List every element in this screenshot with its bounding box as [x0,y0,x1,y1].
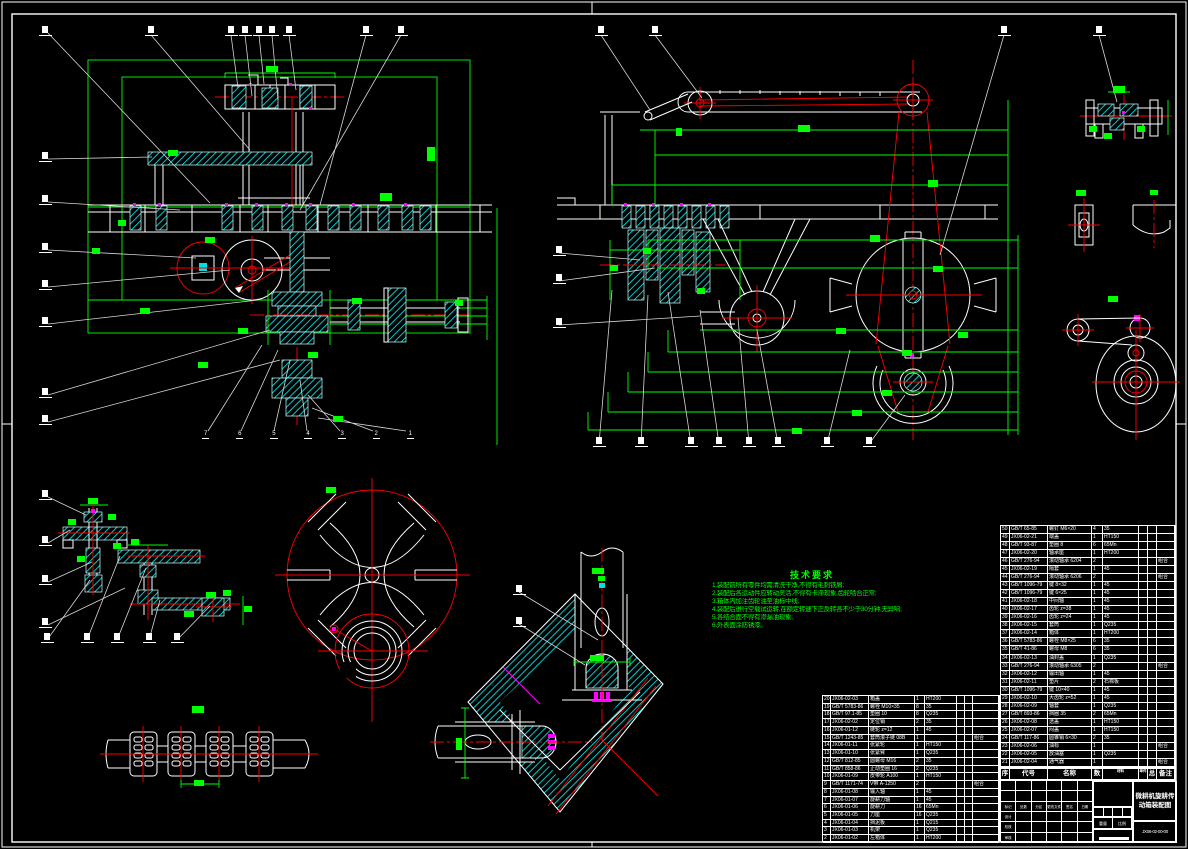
bom-code: JX06-02-03 [831,696,869,703]
bom-weight-each [1139,719,1148,726]
bom-weight-total [965,797,973,804]
drawing-number: JX06-02-00-00 [1133,821,1177,843]
parts-list-row: 33 GB/T 276-94 滚动轴承 6305 2 组合 [1001,663,1175,671]
bom-weight-total [1148,638,1157,645]
bom-code: GB/T 41-86 [1010,646,1048,653]
bom-code: GB/T 65-85 [1010,526,1048,533]
signature-cell: 设计 [1001,812,1016,822]
bom-note [1157,711,1175,718]
numbered-balloon-row: 7654321 [202,431,414,439]
signature-grid: 标记处数分区更改文件号签名日期设计校核审核 [1001,781,1093,843]
parts-list-row: 32 JX06-02-12 输出轴 1 45 [1001,671,1175,679]
signature-cell [1032,833,1047,843]
bom-material: Q235 [1103,622,1139,629]
bom-weight-each [1139,703,1148,710]
bom-seq: 32 [1001,671,1010,678]
bom-name: 输出轴 [1048,671,1092,678]
bom-name: 垫片 [1048,679,1092,686]
bom-weight-each [957,812,965,819]
bom-weight-each [957,773,965,780]
bom-material: Q235 [1103,655,1139,662]
bom-material [1103,558,1139,565]
parts-list-row: 17 JX06-02-02 定位销 2 35 [823,719,999,727]
parts-list-row: 34 JX06-02-13 油封盖 1 Q235 [1001,655,1175,663]
view-detail-shaft [1080,92,1172,140]
bom-name: 放油塞 [1048,751,1092,758]
parts-list-row: 7 JX06-01-07 旋耕刀轴 1 45 [823,797,999,805]
bom-name: 套筒 [1048,622,1092,629]
bom-code: GB/T 93-87 [1010,542,1048,549]
view-tine-shaft [100,726,318,788]
view-detail-pin-bracket [1068,198,1176,252]
bom-material: HT150 [925,773,957,780]
bom-seq: 31 [1001,679,1010,686]
bom-weight-total [1148,711,1157,718]
parts-list-row: 23 JX06-02-06 油标 1 组合 [1001,743,1175,751]
tech-requirements-title: 技术要求 [712,568,912,582]
signature-cell: 校核 [1001,822,1016,832]
signature-cell [1001,781,1016,791]
bom-weight-total [965,812,973,819]
parts-list-row: 41 JX06-02-18 中间轴 1 45 [1001,598,1175,606]
bom-weight-each [1139,727,1148,734]
bom-weight-total [965,719,973,726]
bom-code: JX06-02-02 [831,719,869,726]
bom-name: 滚动轴承 6305 [1048,663,1092,670]
bom-name: 旋耕刀 [869,804,915,811]
bom-code: GB/T 276-94 [1010,574,1048,581]
bom-name: 链轮 z=12 [869,727,915,734]
bom-weight-total [965,789,973,796]
bom-qty: 8 [915,711,925,718]
bom-weight-each [957,704,965,711]
bom-name: 圆锥销 6×30 [1048,735,1092,742]
bom-qty: 6 [1092,542,1103,549]
bom-note [973,727,999,734]
bom-qty: 1 [915,696,925,703]
signature-cell [1062,812,1077,822]
bom-material: Q215 [925,820,957,827]
bom-note [973,719,999,726]
bom-note [1157,606,1175,613]
bom-material: HT200 [925,835,957,842]
bom-name: 隔套 [1048,566,1092,573]
bom-note: 组合 [1157,574,1175,581]
bom-seq: 40 [1001,606,1010,613]
bom-qty: 1 [915,820,925,827]
signature-cell [1016,812,1031,822]
bom-qty: 1 [1092,655,1103,662]
parts-list-row: 3 JX06-01-03 机架 1 Q235 [823,827,999,835]
bom-weight-total [965,750,973,757]
bom-weight-total [1148,582,1157,589]
bom-qty: 2 [1092,574,1103,581]
bom-qty: 1 [915,727,925,734]
bom-seq: 7 [823,797,831,804]
bom-note [973,750,999,757]
bom-weight-each [1139,630,1148,637]
parts-list-row: 31 JX06-02-11 垫片 2 石棉板 [1001,679,1175,687]
bom-weight-total [1148,542,1157,549]
bom-qty: 1 [915,773,925,780]
bom-weight-each [957,719,965,726]
bom-name: 键 6×25 [1048,590,1092,597]
bom-weight-total [1148,759,1157,766]
bom-weight-total [1148,671,1157,678]
bom-weight-total [1148,687,1157,694]
bom-note [1157,751,1175,758]
tech-requirements-lines: 1.装配前所有零件均需清洗干净,不得有毛刺铁屑;2.装配后各运动件应转动灵活,不… [712,582,912,630]
bom-qty: 6 [1092,638,1103,645]
parts-list-header-cell: 序 [1001,769,1010,779]
bom-material: 35 [1103,638,1139,645]
bom-note [973,827,999,834]
technical-requirements: 技术要求 1.装配前所有零件均需清洗干净,不得有毛刺铁屑;2.装配后各运动件应转… [712,568,912,630]
bom-note [973,797,999,804]
bom-weight-each [957,742,965,749]
parts-list-row: 46 GB/T 276-94 滚动轴承 6204 2 组合 [1001,558,1175,566]
bom-note [1157,679,1175,686]
bom-weight-total [965,804,973,811]
bom-weight-total [1148,534,1157,541]
bom-material: 35 [925,719,957,726]
bom-qty: 1 [915,789,925,796]
bom-code: GB/T 893-86 [1010,711,1048,718]
bom-weight-each [1139,590,1148,597]
parts-list-row: 13 JX06-01-10 张紧臂 1 Q235 [823,750,999,758]
bom-weight-each [1139,622,1148,629]
bom-code: GB/T 276-94 [1010,663,1048,670]
bom-name: 旋耕刀轴 [869,797,915,804]
bom-weight-total [965,766,973,773]
view-front-section [88,60,497,445]
parts-list-row: 45 JX06-02-19 隔套 1 45 [1001,566,1175,574]
bom-name: 油封盖 [1048,655,1092,662]
bom-weight-each [1139,759,1148,766]
bom-note [973,804,999,811]
bom-weight-each [1139,663,1148,670]
bom-code: JX06-01-11 [831,742,869,749]
bom-name: 止动垫圈 16 [869,766,915,773]
bom-weight-each [1139,743,1148,750]
sheet-count-row [1093,829,1133,843]
bom-weight-each [1139,574,1148,581]
bom-seq: 44 [1001,574,1010,581]
bom-weight-each [957,789,965,796]
bom-code: GB/T 97.1-85 [831,711,869,718]
bom-material: 35 [925,704,957,711]
bom-name: 通气器 [1048,759,1092,766]
bom-weight-each [1139,550,1148,557]
bom-code: JX06-02-15 [1010,622,1048,629]
bom-weight-total [965,827,973,834]
bom-weight-total [1148,558,1157,565]
stage-mark-row [1093,807,1133,817]
bom-weight-each [957,735,965,742]
bom-code: JX06-02-08 [1010,719,1048,726]
bom-note [1157,671,1175,678]
bom-note [1157,598,1175,605]
bom-weight-each [957,781,965,788]
part-balloon-number: 4 [304,431,311,439]
bom-material: 45 [1103,687,1139,694]
parts-list-row: 44 GB/T 276-94 滚动轴承 6206 2 组合 [1001,574,1175,582]
bom-material: 石棉板 [1103,679,1139,686]
bom-name: 中间轴 [1048,598,1092,605]
bom-code: JX06-02-06 [1010,743,1048,750]
bom-note [1157,655,1175,662]
bom-code: JX06-01-10 [831,750,869,757]
drawing-sheet: 技术要求 1.装配前所有零件均需清洗干净,不得有毛刺铁屑;2.装配后各运动件应转… [0,0,1188,849]
parts-list-row: 42 GB/T 1096-79 键 6×25 1 45 [1001,590,1175,598]
bom-note [973,820,999,827]
bom-weight-each [1139,614,1148,621]
parts-list-left: 20 JX06-02-03 箱盖 1 HT200 19 GB/T 5783-86… [822,695,1000,842]
bom-material: Q235 [925,711,957,718]
bom-name: 挡圈 35 [1048,711,1092,718]
parts-list-header-cell: 代号 [1010,769,1048,779]
bom-seq: 16 [823,727,831,734]
sheet-count-bar [1099,837,1129,840]
bom-seq: 15 [823,735,831,742]
bom-note: 组合 [973,781,999,788]
bom-material: 45 [1103,614,1139,621]
bom-weight-total [1148,735,1157,742]
signature-cell [1001,791,1016,801]
bom-material: 45 [925,789,957,796]
stage-cell [1113,808,1123,816]
bom-material: HT150 [925,742,957,749]
bom-code: GB/T 1096-79 [1010,590,1048,597]
bom-material [1103,743,1139,750]
bom-weight-total [1148,727,1157,734]
parts-list-row: 22 JX06-02-05 放油塞 1 Q235 [1001,751,1175,759]
bom-weight-total [965,835,973,842]
bom-weight-each [957,696,965,703]
bom-seq: 5 [823,812,831,819]
bom-name: 螺母 M8 [1048,646,1092,653]
bom-note: 组合 [973,735,999,742]
signature-cell: 签名 [1062,802,1077,812]
bom-weight-each [1139,526,1148,533]
parts-list-row: 48 GB/T 93-87 垫圈 8 6 65Mn [1001,542,1175,550]
part-balloon-number: 7 [202,431,209,439]
bom-code: GB/T 858-86 [831,766,869,773]
parts-list-header-cell: 数 [1092,769,1103,779]
parts-list-header-cell: 备注 [1157,769,1175,779]
bom-material: 45 [1103,598,1139,605]
bom-note [1157,727,1175,734]
view-detail-vertical-shafts [58,500,243,625]
bom-code: GB/T 1171-74 [831,781,869,788]
bom-material: HT200 [1103,630,1139,637]
bom-qty: 1 [1092,743,1103,750]
bom-material: 35 [925,758,957,765]
bom-qty: 1 [1092,687,1103,694]
signature-cell: 日期 [1078,802,1093,812]
bom-seq: 13 [823,750,831,757]
bom-weight-each [1139,735,1148,742]
bom-weight-total [1148,646,1157,653]
bom-qty: 1 [1092,759,1103,766]
bom-weight-total [1148,751,1157,758]
bom-qty: 6 [1092,646,1103,653]
bom-material: HT150 [1103,534,1139,541]
bom-weight-each [957,766,965,773]
bom-weight-total [1148,719,1157,726]
bom-note: 组合 [1157,743,1175,750]
parts-list-row: 43 GB/T 1096-79 键 8×32 1 45 [1001,582,1175,590]
bom-name: 齿轮 z=24 [1048,614,1092,621]
parts-list-row: 14 JX06-01-11 张紧轮 1 HT150 [823,742,999,750]
bom-weight-each [1139,679,1148,686]
bom-qty: 1 [1092,606,1103,613]
bom-weight-total [965,758,973,765]
bom-seq: 20 [823,696,831,703]
bom-weight-total [1148,606,1157,613]
bom-seq: 42 [1001,590,1010,597]
scale-label: 比例 [1113,818,1132,829]
bom-name: 螺栓 M8×25 [1048,638,1092,645]
bom-seq: 30 [1001,687,1010,694]
signature-cell [1032,812,1047,822]
bom-qty: 2 [1092,663,1103,670]
bom-weight-each [1139,655,1148,662]
signature-cell [1078,791,1093,801]
signature-cell: 更改文件号 [1047,802,1062,812]
bom-weight-total [965,696,973,703]
bom-note [1157,542,1175,549]
parts-list-header-cell: 材料 [1103,769,1139,779]
bom-note [1157,566,1175,573]
bom-seq: 14 [823,742,831,749]
bom-seq: 22 [1001,751,1010,758]
parts-list-row: 49 JX06-02-21 端盖 1 HT150 [1001,534,1175,542]
bom-qty: 1 [1092,614,1103,621]
bom-qty: 1 [1092,727,1103,734]
parts-list-row: 12 GB/T 812-85 圆螺母 M16 2 35 [823,758,999,766]
bom-material: Q235 [925,750,957,757]
bearing-hatches-side [622,203,729,228]
bom-code: JX06-02-19 [1010,566,1048,573]
bom-qty: 1 [1092,582,1103,589]
bom-note [973,711,999,718]
bom-seq: 35 [1001,646,1010,653]
signature-cell [1016,791,1031,801]
bom-code: JX06-02-12 [1010,671,1048,678]
bom-name: 套筒滚子链 08B [869,735,915,742]
bom-weight-total [965,704,973,711]
bom-weight-each [1139,598,1148,605]
bom-name: 大齿轮 z=52 [1048,695,1092,702]
bom-seq: 11 [823,766,831,773]
bom-seq: 46 [1001,558,1010,565]
parts-list-row: 11 GB/T 858-86 止动垫圈 16 2 Q235 [823,766,999,774]
bom-material [1103,574,1139,581]
bom-material: HT200 [925,696,957,703]
bom-name: 输入轴 [869,789,915,796]
bom-name: 透盖 [1048,719,1092,726]
bom-weight-total [1148,743,1157,750]
bom-weight-total [1148,566,1157,573]
bom-weight-total [965,735,973,742]
weight-label: 重量 [1094,818,1113,829]
bom-weight-each [1139,566,1148,573]
bom-qty: 1 [1092,703,1103,710]
parts-list-header-cell: 总计 [1148,769,1157,779]
signature-cell [1078,833,1093,843]
bom-note [1157,534,1175,541]
bom-weight-each [1139,582,1148,589]
bom-weight-total [965,711,973,718]
bom-name: 闷盖 [1048,727,1092,734]
bom-note [973,696,999,703]
bom-note [1157,582,1175,589]
bom-weight-total [1148,703,1157,710]
bom-note [1157,735,1175,742]
bom-qty: 1 [1092,590,1103,597]
signature-cell [1032,781,1047,791]
bom-material: 45 [1103,582,1139,589]
bom-qty: 1 [915,750,925,757]
bom-seq: 39 [1001,614,1010,621]
bom-weight-each [957,835,965,842]
bom-seq: 23 [1001,743,1010,750]
bom-name: 齿轮 z=38 [1048,606,1092,613]
bom-material: Q235 [925,812,957,819]
bom-weight-each [957,750,965,757]
bom-seq: 19 [823,704,831,711]
bom-name: 滚动轴承 6204 [1048,558,1092,565]
bom-material: 45 [1103,671,1139,678]
bom-weight-total [1148,574,1157,581]
view-side-section [557,60,1018,440]
bom-weight-each [1139,638,1148,645]
bom-material: Q235 [925,766,957,773]
bom-weight-each [957,797,965,804]
bom-weight-total [965,742,973,749]
signature-cell [1078,781,1093,791]
bom-name: 垫圈 8 [1048,542,1092,549]
bom-note [1157,646,1175,653]
parts-list-row: 5 JX06-01-05 刀座 16 Q235 [823,812,999,820]
tech-requirement-line: 2.装配后各运动件应转动灵活,不得有卡滞现象,齿轮啮合正常; [712,590,912,598]
bom-material: 35 [1103,526,1139,533]
bom-material [925,781,957,788]
parts-list-row: 10 JX06-01-09 皮带轮 A100 1 HT150 [823,773,999,781]
bom-seq: 26 [1001,719,1010,726]
bom-seq: 21 [1001,759,1010,766]
view-detail-belt-train [1062,314,1180,440]
bom-weight-total [1148,655,1157,662]
bom-seq: 38 [1001,622,1010,629]
bom-note [973,766,999,773]
bom-seq: 47 [1001,550,1010,557]
bom-material: Q235 [1103,751,1139,758]
bom-weight-total [1148,679,1157,686]
bom-qty: 2 [915,719,925,726]
bom-note [1157,526,1175,533]
bom-qty: 2 [1092,711,1103,718]
bom-qty: 16 [915,804,925,811]
bom-seq: 49 [1001,534,1010,541]
signature-cell [1062,822,1077,832]
bom-qty: 1 [915,827,925,834]
bom-weight-each [1139,542,1148,549]
signature-cell [1016,833,1031,843]
bom-code: JX06-02-10 [1010,695,1048,702]
bom-code: GB/T 1096-79 [1010,687,1048,694]
